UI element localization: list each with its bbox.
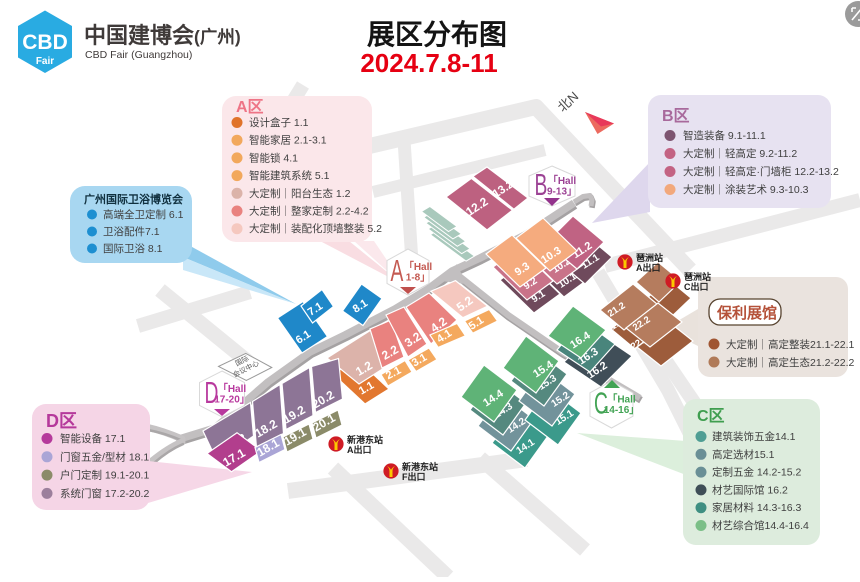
- svg-text:智能家居 2.1-3.1: 智能家居 2.1-3.1: [249, 134, 327, 147]
- svg-text:新港东站: 新港东站: [347, 434, 383, 445]
- svg-text:C区: C区: [697, 407, 725, 425]
- svg-text:CBD Fair (Guangzhou): CBD Fair (Guangzhou): [85, 49, 192, 61]
- svg-text:门窗五金/型材 18.1: 门窗五金/型材 18.1: [60, 450, 149, 463]
- svg-text:高端全卫定制 6.1: 高端全卫定制 6.1: [103, 208, 184, 221]
- svg-text:大定制｜整家定制 2.2-4.2: 大定制｜整家定制 2.2-4.2: [249, 205, 369, 218]
- svg-text:「Hall: 「Hall: [548, 174, 577, 187]
- svg-text:9-13」: 9-13」: [547, 187, 577, 198]
- svg-text:17-20」: 17-20」: [214, 395, 250, 406]
- svg-text:户门定制 19.1-20.1: 户门定制 19.1-20.1: [60, 469, 149, 482]
- svg-text:智能设备 17.1: 智能设备 17.1: [60, 432, 126, 445]
- svg-text:「Hall: 「Hall: [218, 382, 247, 395]
- svg-text:定制五金 14.2-15.2: 定制五金 14.2-15.2: [712, 466, 801, 479]
- svg-text:大定制｜阳台生态 1.2: 大定制｜阳台生态 1.2: [249, 187, 351, 200]
- svg-text:A: A: [391, 255, 404, 289]
- svg-text:A区: A区: [236, 98, 264, 116]
- svg-text:A出口: A出口: [347, 444, 372, 455]
- svg-text:新港东站: 新港东站: [402, 461, 438, 472]
- svg-text:大定制｜轻高定 9.2-11.2: 大定制｜轻高定 9.2-11.2: [683, 147, 797, 160]
- svg-text:B: B: [535, 169, 548, 203]
- svg-text:系统门窗 17.2-20.2: 系统门窗 17.2-20.2: [60, 487, 149, 500]
- svg-text:智能锁 4.1: 智能锁 4.1: [249, 151, 298, 164]
- svg-text:C出口: C出口: [684, 281, 709, 292]
- svg-text:展区分布图: 展区分布图: [367, 19, 507, 50]
- svg-text:高定选材15.1: 高定选材15.1: [712, 448, 775, 461]
- svg-text:F出口: F出口: [402, 471, 426, 482]
- svg-text:卫浴配件7.1: 卫浴配件7.1: [103, 226, 160, 238]
- svg-text:D区: D区: [46, 411, 77, 431]
- svg-text:1-8」: 1-8」: [406, 273, 430, 284]
- svg-text:A出口: A出口: [636, 262, 661, 273]
- svg-text:广州国际卫浴博览会: 广州国际卫浴博览会: [84, 192, 184, 206]
- svg-text:「Hall: 「Hall: [607, 393, 636, 406]
- svg-text:14-16」: 14-16」: [604, 405, 640, 416]
- svg-text:保利展馆: 保利展馆: [716, 304, 777, 322]
- svg-text:智造装备 9.1-11.1: 智造装备 9.1-11.1: [683, 129, 766, 142]
- svg-text:建筑装饰五金14.1: 建筑装饰五金14.1: [712, 430, 796, 443]
- svg-text:智能建筑系统 5.1: 智能建筑系统 5.1: [249, 169, 330, 182]
- svg-text:琶洲站: 琶洲站: [684, 271, 711, 282]
- svg-text:国际卫浴 8.1: 国际卫浴 8.1: [103, 243, 163, 255]
- svg-text:设计盒子 1.1: 设计盒子 1.1: [249, 116, 309, 129]
- svg-text:「Hall: 「Hall: [404, 260, 433, 273]
- svg-text:家居材料 14.3-16.3: 家居材料 14.3-16.3: [712, 501, 801, 514]
- svg-text:CBD: CBD: [22, 31, 68, 54]
- svg-text:大定制｜装配化顶墙整装 5.2: 大定制｜装配化顶墙整装 5.2: [249, 222, 382, 235]
- svg-text:材艺国际馆 16.2: 材艺国际馆 16.2: [712, 483, 788, 496]
- svg-text:大定制｜涂装艺术 9.3-10.3: 大定制｜涂装艺术 9.3-10.3: [683, 183, 809, 196]
- svg-text:琶洲站: 琶洲站: [636, 252, 663, 263]
- svg-text:中国建博会(广州): 中国建博会(广州): [84, 23, 241, 48]
- svg-text:材艺综合馆14.4-16.4: 材艺综合馆14.4-16.4: [712, 519, 809, 532]
- svg-text:大定制｜高定整装21.1-22.1: 大定制｜高定整装21.1-22.1: [726, 338, 855, 351]
- svg-text:B区: B区: [662, 107, 690, 125]
- svg-text:2024.7.8-11: 2024.7.8-11: [360, 48, 497, 78]
- svg-text:Fair: Fair: [36, 56, 54, 67]
- svg-text:大定制｜轻高定·门墙柜 12.2-13.2: 大定制｜轻高定·门墙柜 12.2-13.2: [683, 165, 839, 178]
- svg-text:大定制｜高定生态21.2-22.2: 大定制｜高定生态21.2-22.2: [726, 356, 855, 369]
